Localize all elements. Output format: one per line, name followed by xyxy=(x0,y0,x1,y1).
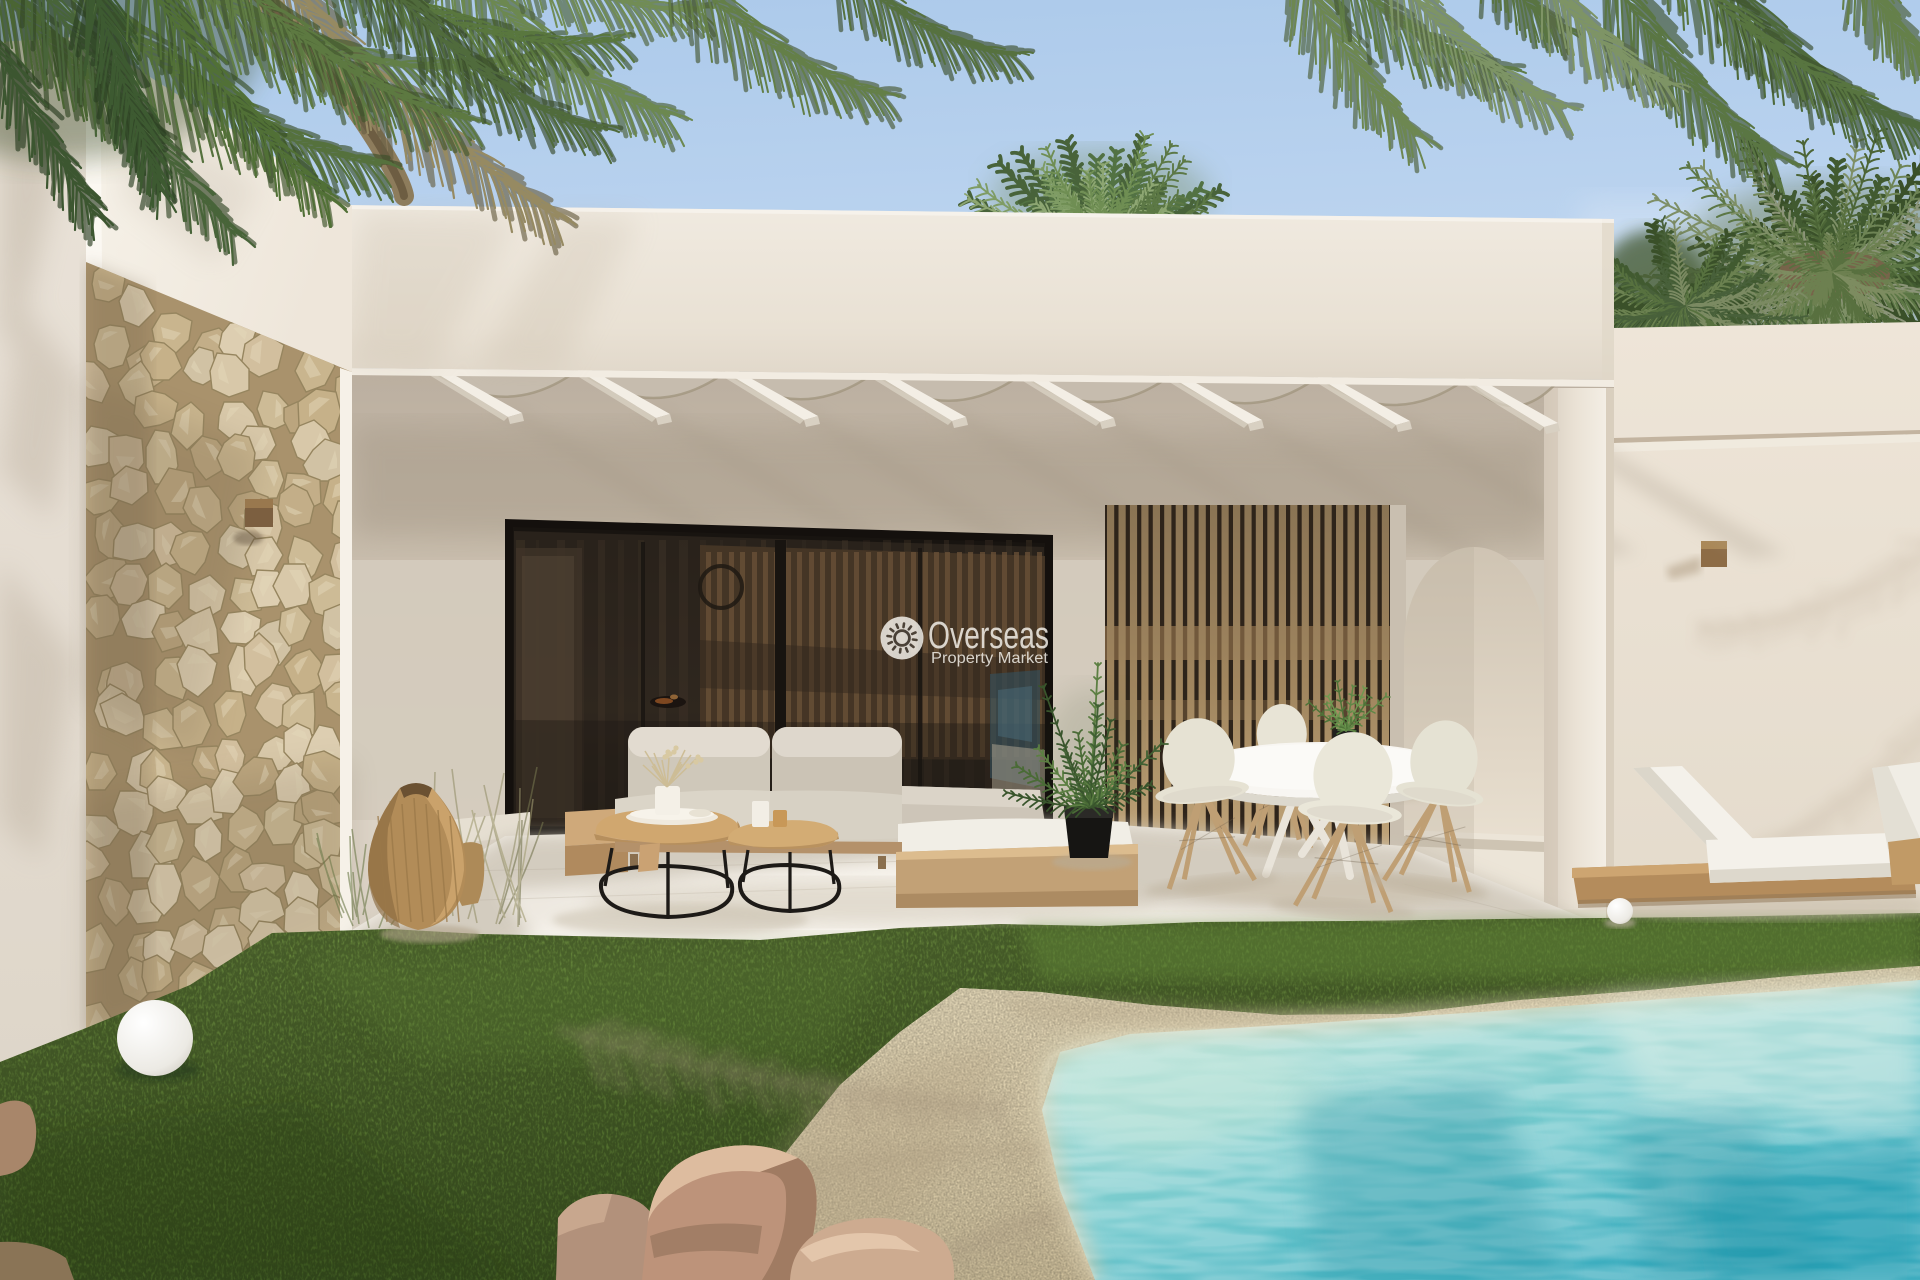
svg-text:Property Market: Property Market xyxy=(931,650,1049,667)
